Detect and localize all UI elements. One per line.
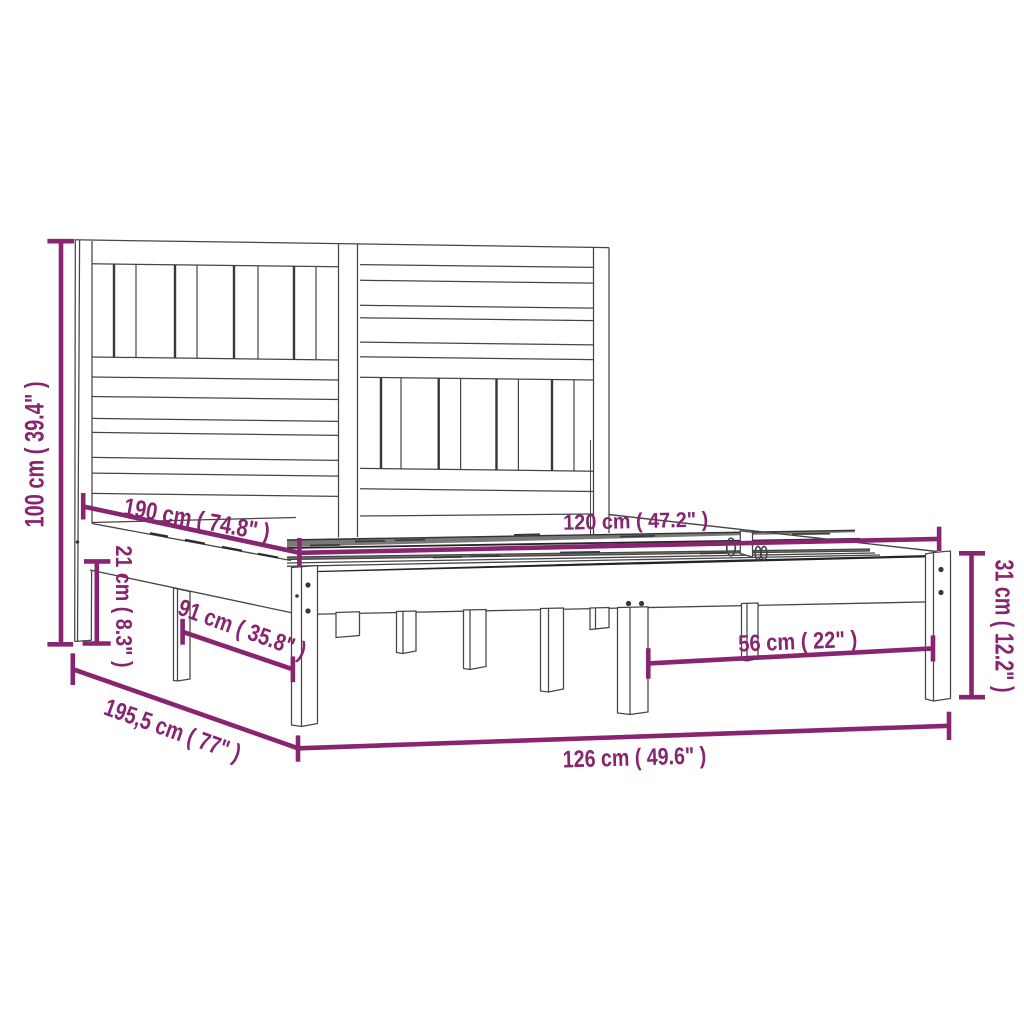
svg-text:100 cm ( 39.4" ): 100 cm ( 39.4" ): [20, 382, 50, 528]
svg-text:56 cm ( 22" ): 56 cm ( 22" ): [738, 626, 858, 657]
svg-text:21 cm ( 8.3" ): 21 cm ( 8.3" ): [111, 546, 137, 668]
svg-text:31 cm ( 12.2" ): 31 cm ( 12.2" ): [990, 560, 1018, 693]
svg-text:120 cm ( 47.2" ): 120 cm ( 47.2" ): [563, 508, 709, 535]
svg-text:126 cm ( 49.6" ): 126 cm ( 49.6" ): [562, 742, 706, 773]
